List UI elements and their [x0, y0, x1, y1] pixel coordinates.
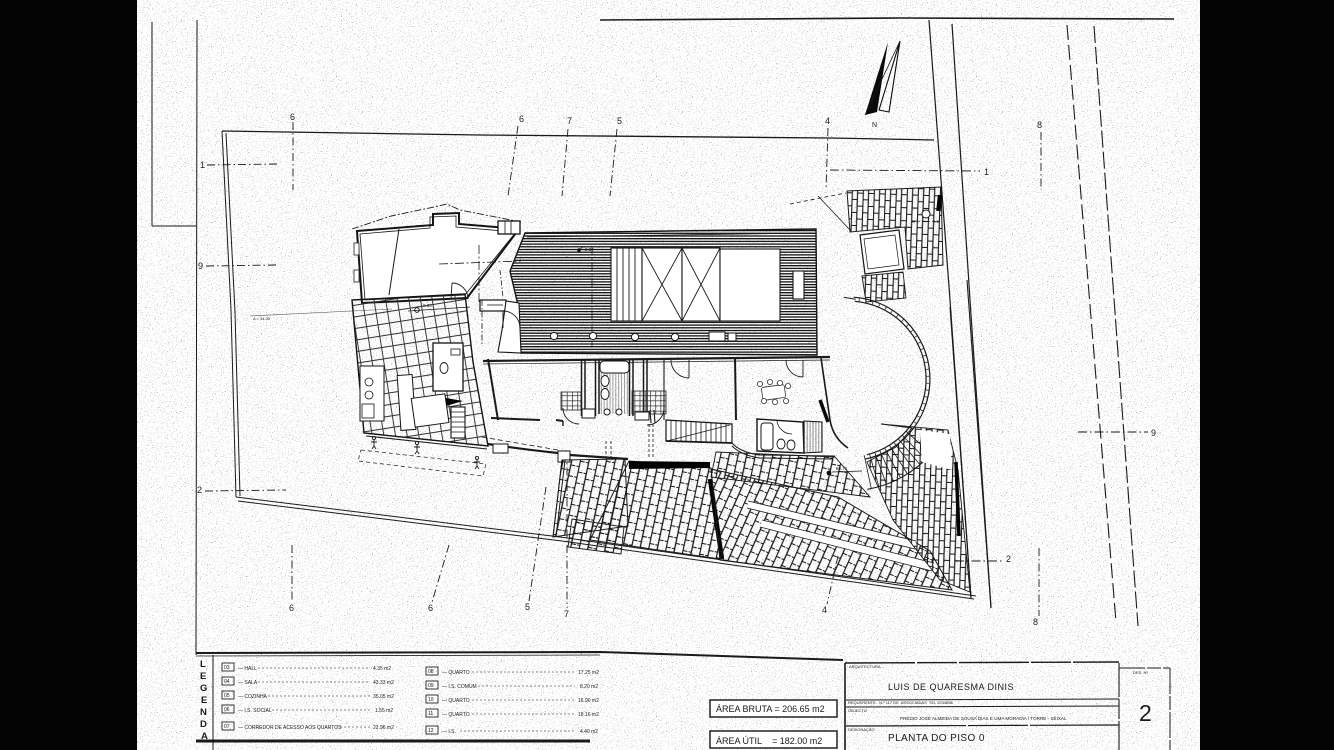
svg-text:D: D [200, 719, 207, 730]
svg-text:9: 9 [198, 261, 203, 271]
svg-text:PRÉDIO JOSÉ ALMEIDA DE SOUSA D: PRÉDIO JOSÉ ALMEIDA DE SOUSA DIAS E UMA … [900, 715, 1067, 721]
svg-text:4.35 m2: 4.35 m2 [373, 666, 391, 672]
svg-text:4: 4 [822, 605, 827, 615]
svg-text:LUIS DE QUARESMA DINIS: LUIS DE QUARESMA DINIS [888, 682, 1014, 692]
svg-text:4.40 m2: 4.40 m2 [580, 729, 598, 735]
svg-text:06: 06 [224, 707, 230, 713]
svg-text:A = 34.05: A = 34.05 [253, 316, 271, 321]
svg-text:8: 8 [1037, 120, 1042, 130]
svg-text:— I.S.: — I.S. [442, 729, 456, 735]
svg-text:REQUERENTE N.º 117 DE ASSOC: REQUERENTE N.º 117 DE ASSOCIADAS TEL 223… [848, 700, 954, 705]
svg-text:10: 10 [428, 697, 434, 703]
svg-text:6: 6 [289, 603, 294, 613]
svg-text:2: 2 [1006, 554, 1011, 564]
svg-text:5: 5 [525, 602, 530, 612]
svg-text:16.90 m2: 16.90 m2 [578, 698, 599, 704]
svg-text:— COZINHA: — COZINHA [238, 694, 268, 700]
svg-text:1: 1 [200, 160, 205, 170]
svg-text:1.55 m2: 1.55 m2 [375, 708, 393, 714]
svg-text:18.16 m2: 18.16 m2 [578, 712, 599, 718]
svg-text:09: 09 [428, 683, 434, 689]
svg-text:— QUARTO: — QUARTO [442, 698, 470, 704]
svg-text:22.96 m2: 22.96 m2 [373, 725, 394, 731]
svg-text:— I.S. COMUM: — I.S. COMUM [442, 684, 477, 690]
svg-text:— CORREDOR DE ACESSO AOS QUART: — CORREDOR DE ACESSO AOS QUARTOS [238, 725, 342, 731]
svg-text:— I.S. SOCIAL: — I.S. SOCIAL [238, 708, 272, 714]
svg-text:35.05 m2: 35.05 m2 [373, 694, 394, 700]
svg-text:4: 4 [825, 116, 830, 126]
svg-text:E: E [201, 695, 207, 706]
svg-text:03: 03 [224, 665, 230, 671]
svg-text:7: 7 [567, 116, 572, 126]
svg-text:8.20 m2: 8.20 m2 [580, 684, 598, 690]
svg-text:07: 07 [224, 724, 230, 730]
svg-text:60.76: 60.76 [836, 466, 848, 471]
svg-text:— QUARTO: — QUARTO [442, 712, 470, 718]
svg-text:8: 8 [1033, 617, 1038, 627]
svg-text:43.33 m2: 43.33 m2 [373, 680, 394, 686]
svg-text:ARQUITECTURA: ARQUITECTURA [849, 664, 881, 669]
svg-text:04: 04 [224, 679, 230, 685]
svg-text:6: 6 [428, 603, 433, 613]
svg-text:DESIGNAÇÃO: DESIGNAÇÃO [848, 727, 875, 732]
svg-text:ÁREA BRUTA = 206.65 m2: ÁREA BRUTA = 206.65 m2 [716, 704, 825, 714]
svg-text:N: N [872, 122, 877, 129]
svg-text:ÁREA ÚTIL = 182.00 m2: ÁREA ÚTIL = 182.00 m2 [716, 736, 822, 746]
svg-text:6: 6 [519, 114, 524, 124]
svg-text:6: 6 [290, 112, 295, 122]
svg-text:9: 9 [1151, 428, 1156, 438]
svg-text:5: 5 [617, 116, 622, 126]
svg-text:— QUARTO: — QUARTO [442, 670, 470, 676]
svg-text:N: N [200, 707, 207, 718]
svg-text:— SALA: — SALA [238, 680, 258, 686]
svg-text:2: 2 [197, 485, 202, 495]
svg-text:17.25 m2: 17.25 m2 [578, 670, 599, 676]
svg-text:2: 2 [1139, 700, 1152, 726]
svg-text:L: L [200, 659, 206, 670]
svg-text:G: G [200, 683, 207, 694]
svg-text:11: 11 [428, 711, 433, 717]
svg-text:2.30: 2.30 [585, 247, 594, 252]
svg-text:— HALL: — HALL [238, 666, 257, 672]
svg-text:1: 1 [984, 167, 989, 177]
svg-text:7: 7 [564, 609, 569, 619]
svg-text:DES. Nº: DES. Nº [1133, 670, 1148, 675]
svg-text:08: 08 [428, 669, 434, 675]
svg-text:A: A [201, 731, 208, 742]
svg-text:PLANTA DO PISO 0: PLANTA DO PISO 0 [888, 733, 985, 744]
svg-text:OBJECTO: OBJECTO [848, 708, 867, 713]
svg-text:12: 12 [428, 728, 434, 734]
svg-text:E: E [200, 671, 206, 682]
svg-text:05: 05 [224, 693, 230, 699]
